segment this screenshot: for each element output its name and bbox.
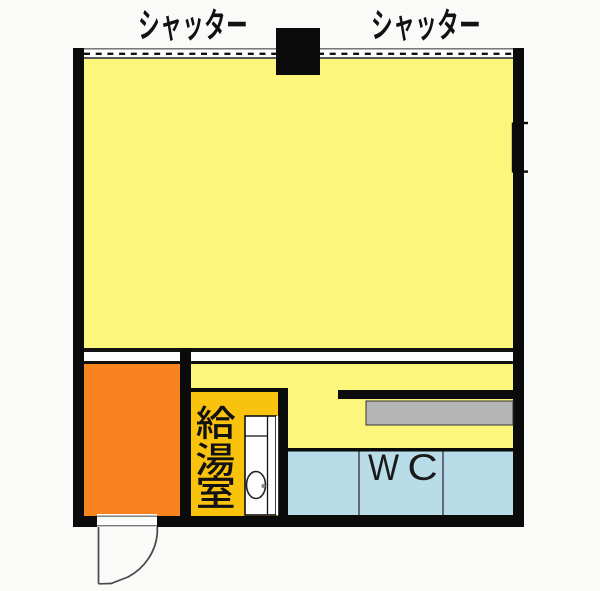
svg-text:W: W (368, 447, 399, 488)
svg-text:C: C (408, 447, 438, 488)
